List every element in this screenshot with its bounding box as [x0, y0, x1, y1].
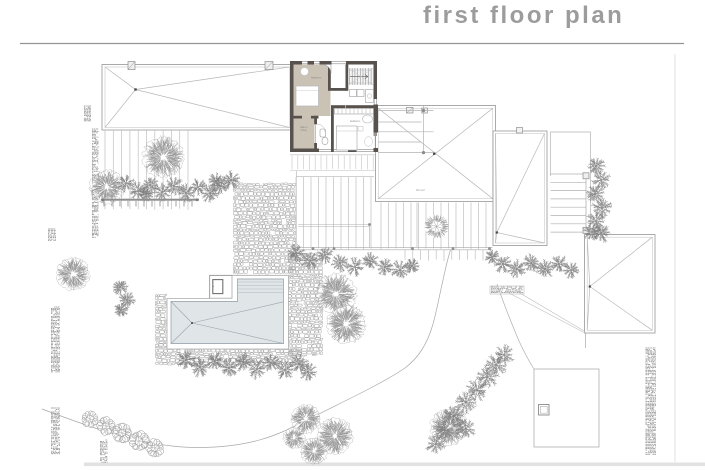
- svg-text:bedroom: bedroom: [311, 76, 321, 80]
- svg-text:first floor plan: first floor plan: [423, 2, 624, 29]
- svg-text:bedroom: bedroom: [350, 119, 360, 123]
- svg-text:flat roof: flat roof: [416, 188, 425, 192]
- svg-text:closet: closet: [301, 129, 308, 132]
